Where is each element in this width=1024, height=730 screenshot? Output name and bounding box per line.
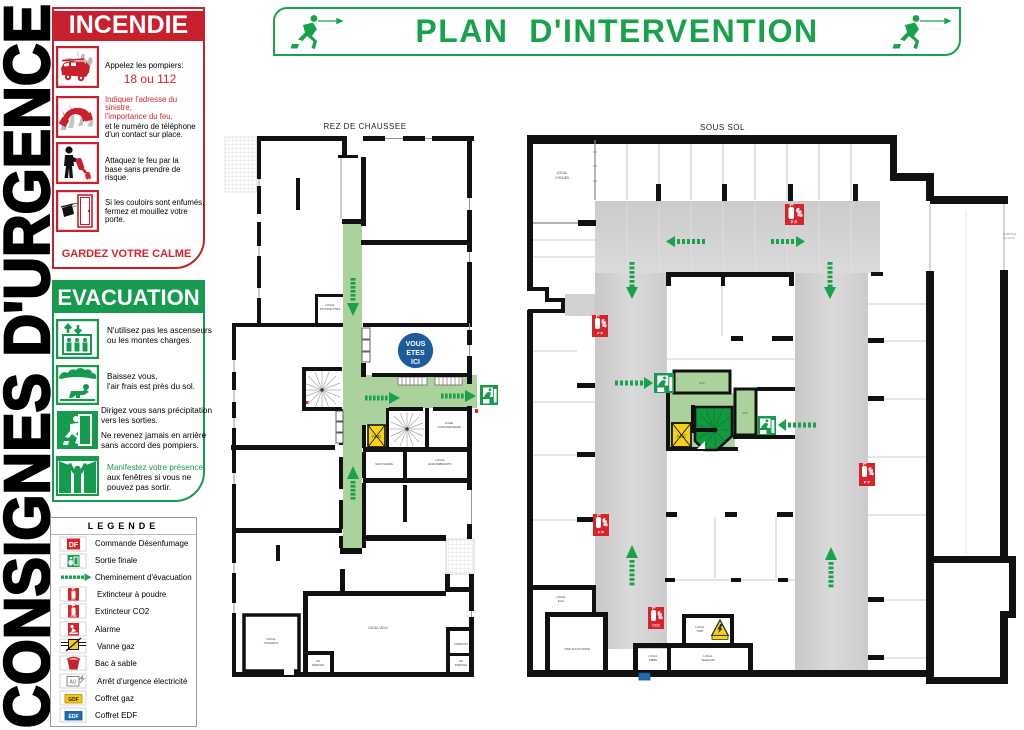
svg-text:P P: P P xyxy=(791,220,798,225)
svg-text:VOUS: VOUS xyxy=(406,341,426,348)
svg-text:TGBT: TGBT xyxy=(696,629,704,633)
svg-text:DF: DF xyxy=(69,542,79,549)
svg-text:CO2: CO2 xyxy=(652,624,659,628)
svg-text:P P: P P xyxy=(598,531,605,535)
svg-text:SAS: SAS xyxy=(742,411,747,415)
svg-text:AU: AU xyxy=(70,680,77,686)
svg-text:CONSIGNES D'URGENCE: CONSIGNES D'URGENCE xyxy=(0,4,56,728)
svg-text:LOCAL: LOCAL xyxy=(557,171,568,175)
svg-text:ETES: ETES xyxy=(406,350,425,357)
svg-text:ICI: ICI xyxy=(411,359,420,366)
svg-text:2 ROUES: 2 ROUES xyxy=(555,176,569,180)
svg-text:POUSSETTES: POUSSETTES xyxy=(320,307,340,311)
svg-text:Lot 14 Pl: Lot 14 Pl xyxy=(1003,236,1015,240)
svg-text:COMPOST: COMPOST xyxy=(454,642,468,646)
svg-text:GDF: GDF xyxy=(68,697,79,703)
svg-text:ENCOMBRANTS: ENCOMBRANTS xyxy=(428,462,451,466)
svg-text:ASC: ASC xyxy=(677,434,687,440)
svg-text:VIDE SOUS FOSSE: VIDE SOUS FOSSE xyxy=(564,647,590,651)
svg-text:EDF: EDF xyxy=(69,714,79,720)
svg-text:FIBRE: FIBRE xyxy=(649,658,657,662)
svg-text:CO2: CO2 xyxy=(70,614,77,618)
svg-text:SAS: SAS xyxy=(699,381,704,385)
svg-text:TRANSFO: TRANSFO xyxy=(264,641,279,645)
svg-text:PP: PP xyxy=(71,597,75,601)
svg-text:ASC: ASC xyxy=(372,434,382,439)
svg-text:P P: P P xyxy=(864,481,871,485)
svg-text:VESTIAIRES: VESTIAIRES xyxy=(375,462,393,466)
svg-text:TELECOM: TELECOM xyxy=(701,658,715,662)
svg-text:EAU: EAU xyxy=(558,599,564,603)
svg-text:CONCIERGERIE: CONCIERGERIE xyxy=(437,425,460,429)
svg-text:PARKING: PARKING xyxy=(312,663,324,667)
svg-text:PARKING: PARKING xyxy=(455,663,467,667)
svg-text:LOCAL VELO: LOCAL VELO xyxy=(368,626,388,630)
svg-text:P P: P P xyxy=(597,332,604,336)
